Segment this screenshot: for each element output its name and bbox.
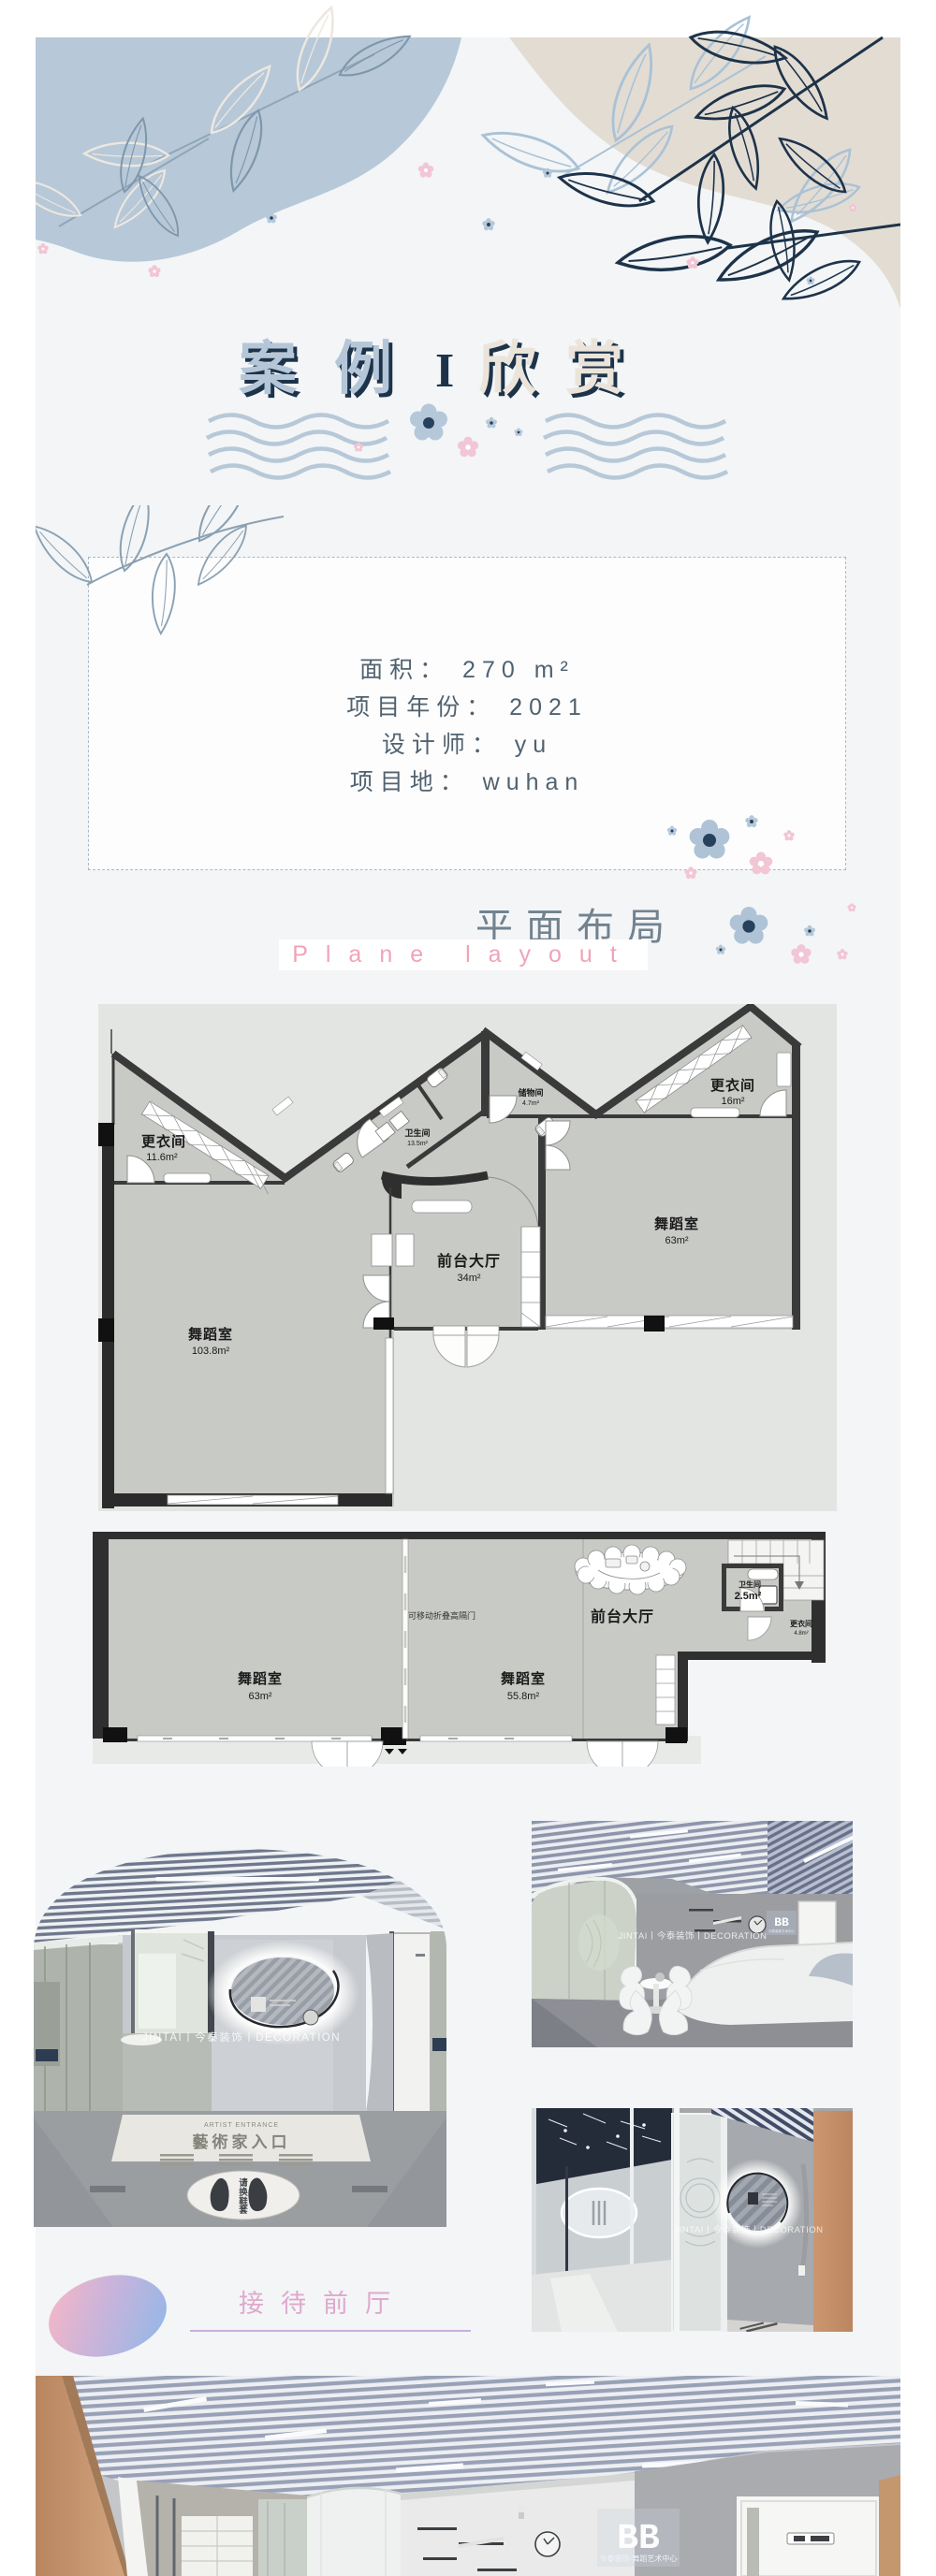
svg-text:舞蹈室: 舞蹈室	[501, 1670, 546, 1687]
svg-text:案: 案	[239, 337, 298, 401]
svg-text:卫生间: 卫生间	[404, 1128, 430, 1138]
svg-text:11.6m²: 11.6m²	[146, 1152, 178, 1163]
svg-text:藝術家入口: 藝術家入口	[193, 2132, 291, 2151]
svg-text:4.8m²: 4.8m²	[794, 1631, 808, 1637]
svg-text:更衣间: 更衣间	[710, 1077, 755, 1094]
svg-text:13.5m²: 13.5m²	[407, 1141, 428, 1147]
svg-text:ARTIST ENTRANCE: ARTIST ENTRANCE	[204, 2122, 279, 2129]
svg-text:BB: BB	[774, 1915, 789, 1929]
svg-text:舞蹈室: 舞蹈室	[654, 1215, 699, 1232]
svg-text:34m²: 34m²	[457, 1273, 480, 1284]
svg-text:63m²: 63m²	[665, 1235, 688, 1246]
svg-text:16m²: 16m²	[721, 1096, 744, 1107]
svg-text:更衣间: 更衣间	[141, 1133, 186, 1150]
svg-text:欣: 欣	[478, 337, 536, 401]
svg-text:舞蹈室: 舞蹈室	[188, 1326, 233, 1343]
svg-text:I: I	[435, 344, 454, 398]
svg-text:4.7m²: 4.7m²	[522, 1100, 540, 1107]
svg-text:JINTAI丨今泰装饰丨DECORATION: JINTAI丨今泰装饰丨DECORATION	[142, 2030, 341, 2044]
svg-text:舞蹈室: 舞蹈室	[238, 1670, 283, 1687]
svg-text:可移动折叠高隔门: 可移动折叠高隔门	[408, 1610, 475, 1621]
svg-text:·今泰装饰·舞蹈艺术中心·: ·今泰装饰·舞蹈艺术中心·	[597, 2554, 680, 2563]
svg-text:今泰装饰艺术中心: 今泰装饰艺术中心	[768, 1928, 795, 1933]
svg-text:2.5m²: 2.5m²	[735, 1591, 762, 1602]
svg-text:赏: 赏	[565, 337, 623, 401]
svg-text:更衣间: 更衣间	[790, 1619, 812, 1628]
svg-text:前台大厅: 前台大厅	[437, 1252, 501, 1270]
svg-text:55.8m²: 55.8m²	[507, 1691, 540, 1702]
svg-text:卫生间: 卫生间	[739, 1579, 761, 1589]
svg-text:BB: BB	[617, 2519, 660, 2559]
svg-text:103.8m²: 103.8m²	[192, 1346, 230, 1357]
svg-text:例: 例	[334, 337, 392, 401]
svg-text:JINTAI丨今泰装饰丨DECORATION: JINTAI丨今泰装饰丨DECORATION	[619, 1930, 768, 1942]
svg-text:储物间: 储物间	[518, 1087, 543, 1098]
svg-text:前台大厅: 前台大厅	[591, 1608, 654, 1625]
svg-text:63m²: 63m²	[248, 1691, 271, 1702]
svg-text:JINTAI丨今泰装饰丨DECORATION: JINTAI丨今泰装饰丨DECORATION	[675, 2224, 824, 2235]
svg-text:套: 套	[238, 2205, 248, 2216]
